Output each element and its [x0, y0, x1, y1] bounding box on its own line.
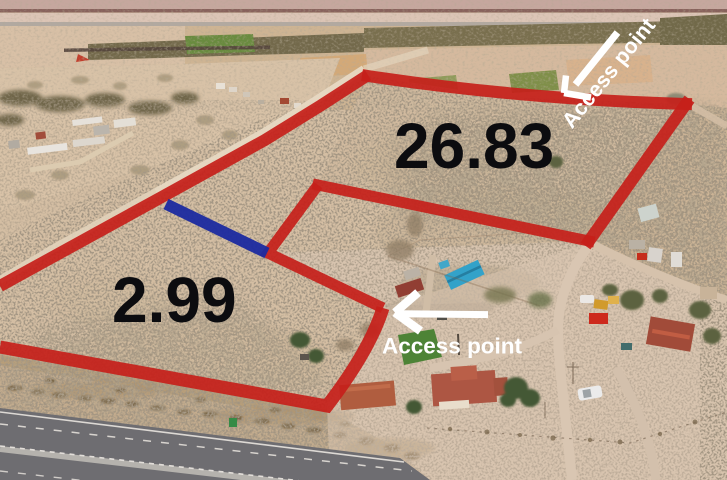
svg-text:2.99: 2.99 — [112, 264, 237, 336]
svg-text:Access point: Access point — [382, 334, 523, 359]
svg-text:26.83: 26.83 — [394, 110, 554, 182]
